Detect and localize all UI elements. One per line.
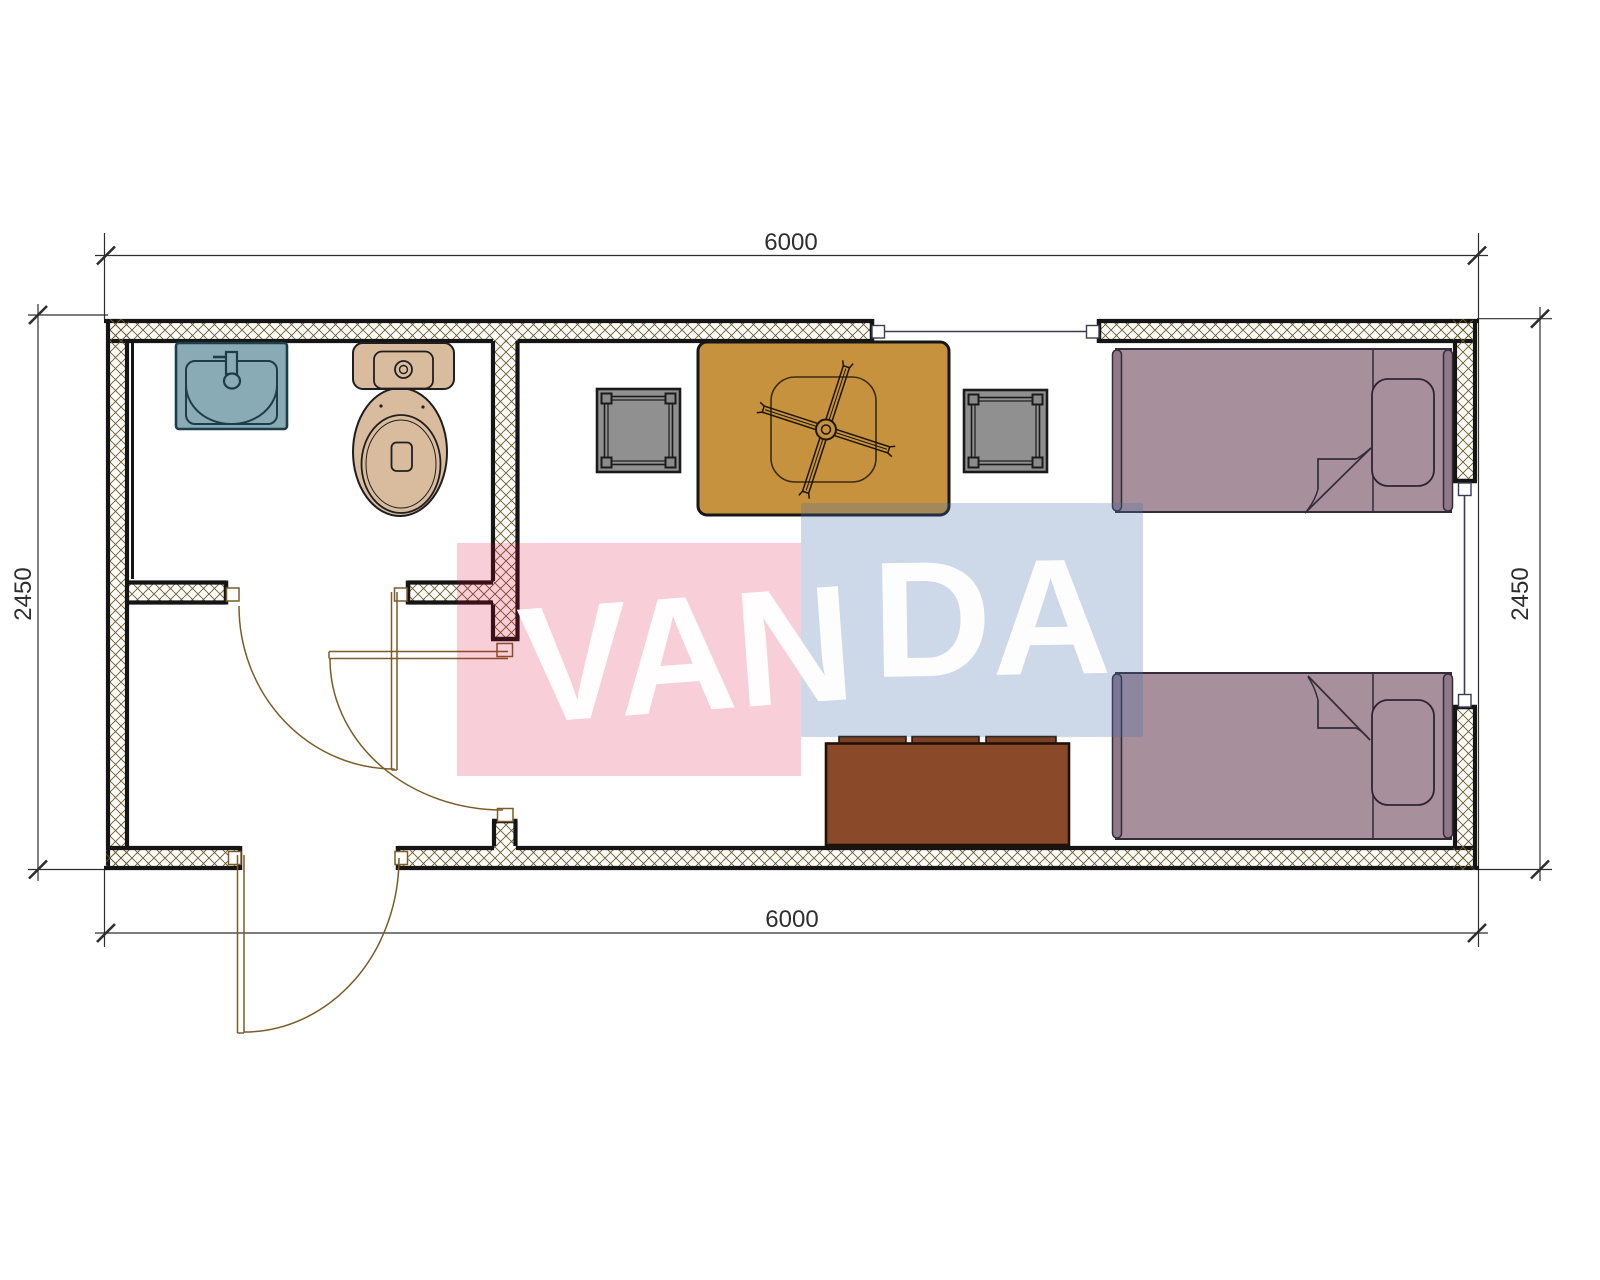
svg-text:6000: 6000 xyxy=(764,229,817,256)
svg-text:2450: 2450 xyxy=(1507,567,1534,620)
svg-text:DA: DA xyxy=(870,524,1112,712)
svg-text:2450: 2450 xyxy=(10,567,37,620)
svg-text:VAN: VAN xyxy=(513,550,860,758)
svg-text:6000: 6000 xyxy=(765,906,818,933)
